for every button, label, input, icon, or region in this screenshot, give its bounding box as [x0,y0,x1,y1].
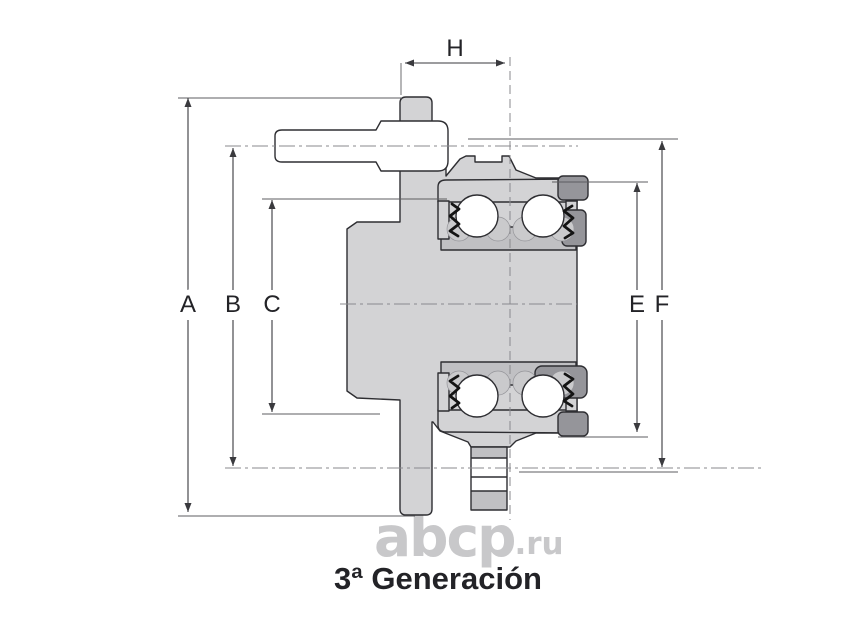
hub-bearing-diagram: abcp.ru [0,0,845,634]
figure-caption: 3ª Generación [253,561,623,597]
dim-label-f: F [655,291,670,318]
dim-label-c: C [263,291,280,318]
figure-canvas: abcp.ru [0,0,845,634]
ball-bottom-inner [522,375,564,417]
outer-ring-bottom [438,410,577,433]
ball-top-inner [522,195,564,237]
outer-ring-flange-top [558,176,588,200]
dim-label-a: A [180,291,196,318]
outer-ring-top-left-lip [438,201,449,239]
ball-bottom-outer [456,375,498,417]
ball-top-outer [456,195,498,237]
dim-label-e: E [629,291,645,318]
outer-ring-bottom-left-lip [438,373,449,411]
outer-ring-flange-bottom [558,412,588,436]
dim-label-b: B [225,291,241,318]
dim-label-h: H [446,35,463,62]
spline-section [471,447,507,510]
